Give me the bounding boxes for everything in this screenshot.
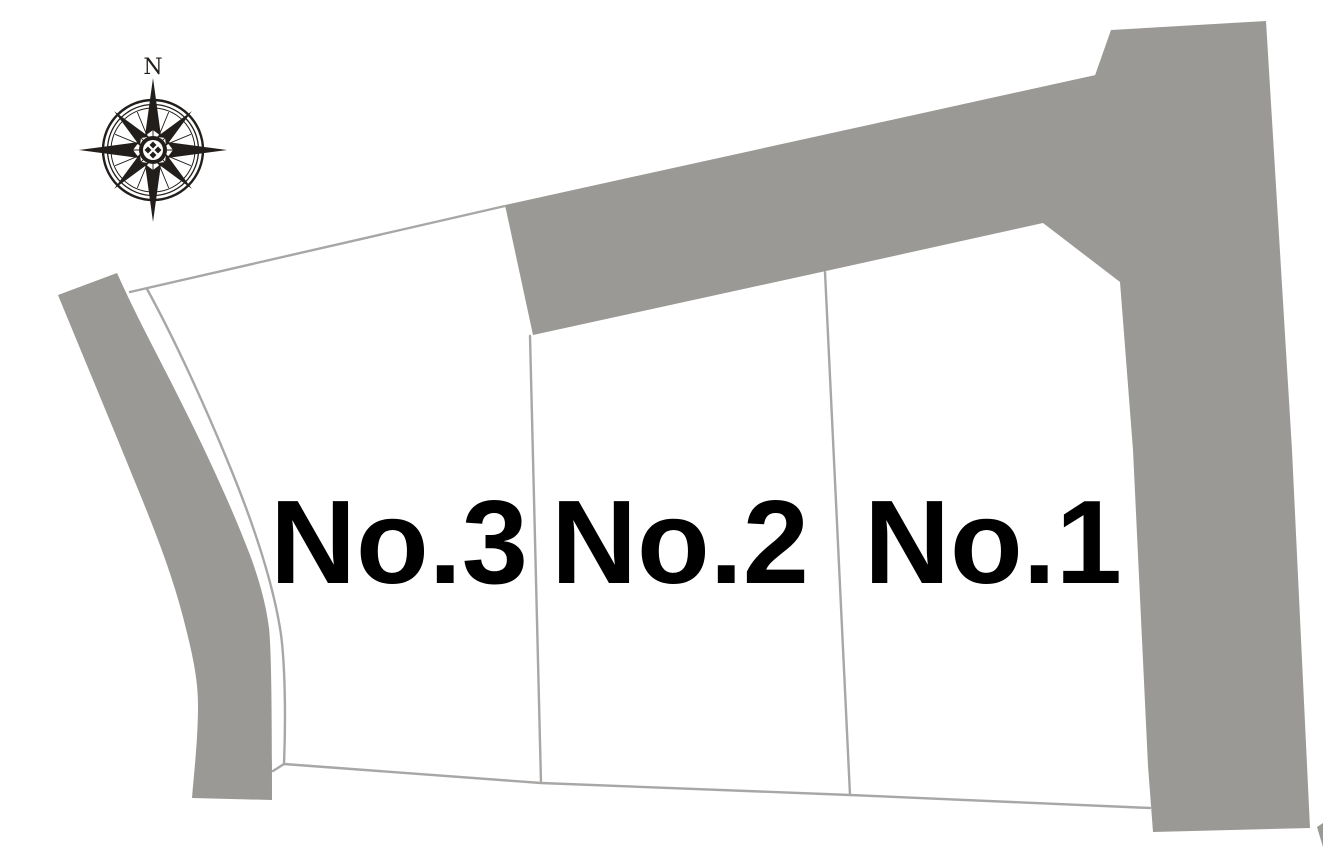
compass-point-west xyxy=(79,142,139,158)
parcel-label-no3: No.3 xyxy=(270,476,528,609)
compass-hub xyxy=(139,136,167,164)
road-west xyxy=(58,273,272,800)
parcel-labels-layer: No.3 No.2 No.1 xyxy=(270,476,1122,609)
road-east xyxy=(1043,21,1310,832)
parcel-label-no1: No.1 xyxy=(864,476,1122,609)
boundary-no3-no2 xyxy=(530,336,541,783)
north-label: N xyxy=(143,55,162,80)
compass-point-east xyxy=(167,142,227,158)
boundary-no2-no1 xyxy=(825,272,850,795)
road-east-corner-fragment xyxy=(1317,823,1323,847)
parcel-south-boundary-line xyxy=(273,764,1150,808)
compass-point-north xyxy=(145,78,161,136)
compass-point-south xyxy=(145,164,161,222)
compass-rose: N xyxy=(79,55,227,222)
roads-layer xyxy=(58,21,1323,847)
site-plan-svg: No.3 No.2 No.1 xyxy=(0,0,1323,851)
parcel-label-no2: No.2 xyxy=(551,476,809,609)
parcel-north-boundary-line xyxy=(130,206,505,292)
site-plan-canvas: No.3 No.2 No.1 xyxy=(0,0,1323,851)
